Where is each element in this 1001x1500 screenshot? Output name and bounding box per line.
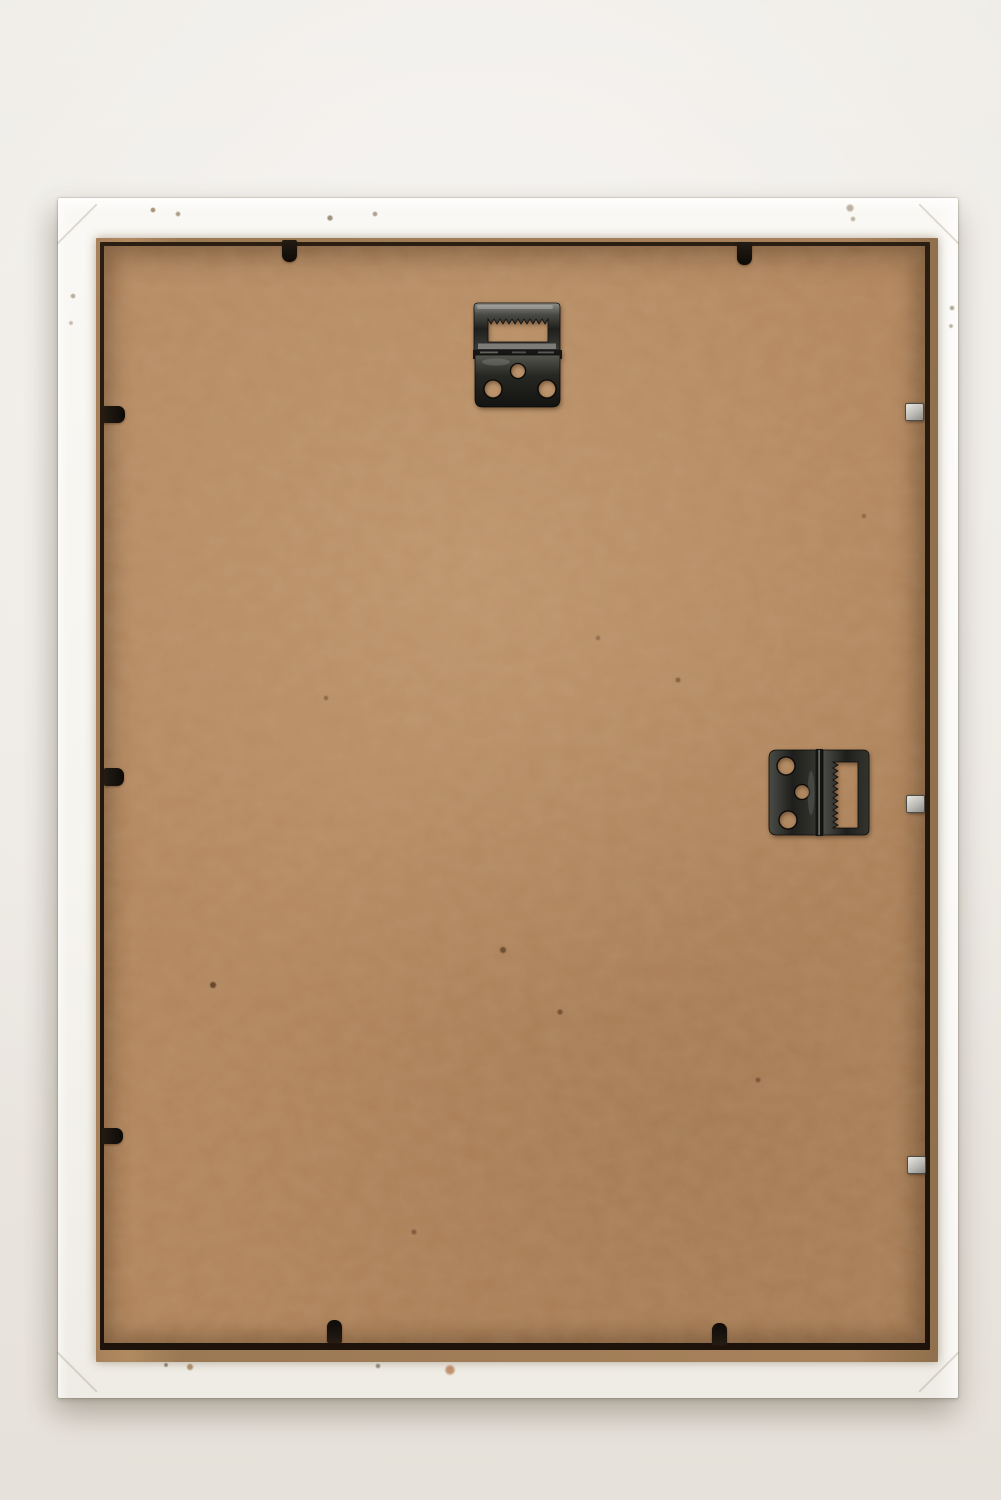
photo-background (0, 0, 1001, 1500)
retaining-tab-bottom-2 (712, 1323, 727, 1345)
glazing-point-right-3 (907, 1156, 926, 1174)
retaining-tab-left-2 (104, 768, 124, 786)
retaining-tab-left-3 (102, 1128, 123, 1144)
mitre-joint-top-left (56, 203, 97, 244)
retaining-tab-top-1 (282, 240, 297, 262)
glazing-point-right-1 (905, 403, 924, 421)
retaining-tab-bottom-1 (327, 1320, 342, 1343)
sawtooth-hanger-top (470, 300, 565, 410)
retaining-tab-left-1 (103, 406, 125, 423)
picture-frame (58, 198, 958, 1398)
sawtooth-hanger-right (765, 745, 873, 840)
retaining-tab-top-2 (737, 242, 752, 265)
mitre-joint-bottom-left (56, 1351, 97, 1392)
glazing-point-right-2 (906, 795, 925, 813)
